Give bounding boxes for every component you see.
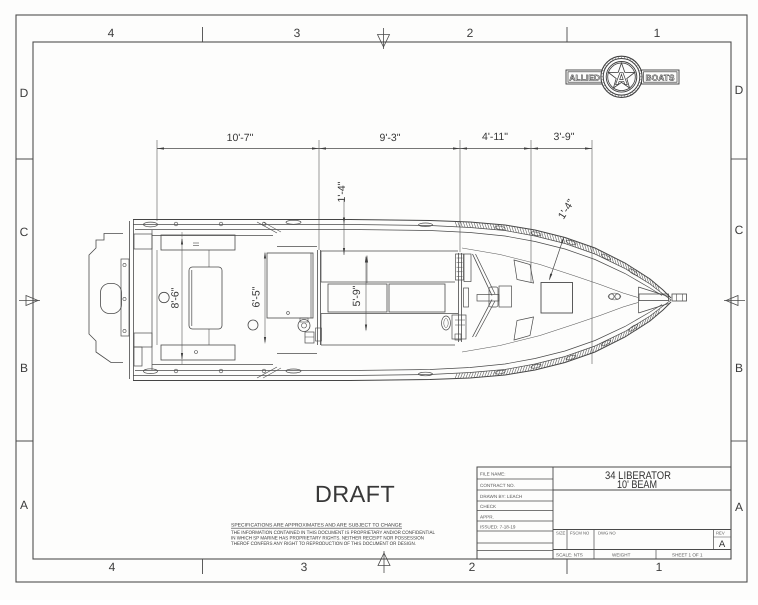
svg-text:C: C — [20, 225, 29, 239]
svg-text:1: 1 — [656, 560, 663, 574]
svg-text:A: A — [20, 498, 28, 512]
svg-text:D: D — [735, 83, 744, 97]
svg-text:DRAFT: DRAFT — [315, 481, 395, 507]
svg-text:A: A — [735, 500, 743, 514]
svg-text:SHEET 1 OF 1: SHEET 1 OF 1 — [672, 553, 703, 558]
svg-text:SPECIFICATIONS ARE APPROXIMATE: SPECIFICATIONS ARE APPROXIMATES AND ARE … — [231, 523, 403, 529]
svg-text:4: 4 — [109, 560, 116, 574]
svg-text:6'-5": 6'-5" — [251, 286, 263, 307]
svg-text:DWG NO: DWG NO — [598, 531, 616, 536]
svg-text:THEROF CONFERS ANY RIGHT TO RE: THEROF CONFERS ANY RIGHT TO REPRODUCTION… — [231, 541, 416, 547]
svg-text:A: A — [615, 69, 628, 89]
svg-text:C: C — [735, 223, 744, 237]
svg-text:1'-4": 1'-4" — [336, 181, 348, 202]
svg-text:BOATS: BOATS — [646, 73, 675, 82]
svg-text:CHECK: CHECK — [480, 504, 497, 509]
svg-text:B: B — [20, 361, 28, 375]
svg-text:ISSUED: 7-18-19: ISSUED: 7-18-19 — [480, 525, 516, 530]
svg-text:WEIGHT: WEIGHT — [612, 553, 631, 558]
svg-text:4: 4 — [108, 26, 115, 40]
svg-text:DRAWN BY: LEACH: DRAWN BY: LEACH — [480, 494, 522, 499]
svg-text:B: B — [735, 361, 743, 375]
svg-text:THE INFORMATION CONTAINED IN T: THE INFORMATION CONTAINED IN THIS DOCUME… — [231, 530, 435, 536]
svg-text:10' BEAM: 10' BEAM — [617, 479, 657, 491]
svg-text:ALLIED: ALLIED — [569, 73, 600, 82]
svg-text:CONTRACT NO.: CONTRACT NO. — [480, 483, 515, 488]
svg-text:FILE NAME:: FILE NAME: — [480, 472, 506, 477]
svg-text:FSCM NO: FSCM NO — [570, 531, 590, 536]
svg-text:A: A — [719, 539, 726, 550]
svg-text:2: 2 — [467, 26, 474, 40]
svg-text:SIZE: SIZE — [556, 531, 566, 536]
svg-text:8'-6": 8'-6" — [170, 287, 182, 308]
svg-text:IN WHICH SP MARINE HAS PROPRIE: IN WHICH SP MARINE HAS PROPRIETARY RIGHT… — [231, 536, 424, 542]
svg-text:APPR.: APPR. — [480, 515, 494, 520]
svg-text:5'-9": 5'-9" — [351, 285, 363, 306]
svg-text:4'-11": 4'-11" — [482, 131, 508, 143]
svg-text:3: 3 — [294, 26, 301, 40]
svg-text:10'-7": 10'-7" — [227, 132, 254, 144]
svg-text:2: 2 — [469, 560, 476, 574]
svg-text:SCALE: NTS: SCALE: NTS — [556, 553, 583, 558]
svg-text:3'-9": 3'-9" — [554, 131, 575, 143]
svg-text:REV: REV — [716, 531, 725, 536]
svg-text:9'-3": 9'-3" — [380, 132, 401, 144]
svg-text:1: 1 — [654, 26, 661, 40]
svg-text:3: 3 — [301, 560, 308, 574]
svg-text:D: D — [20, 86, 29, 100]
